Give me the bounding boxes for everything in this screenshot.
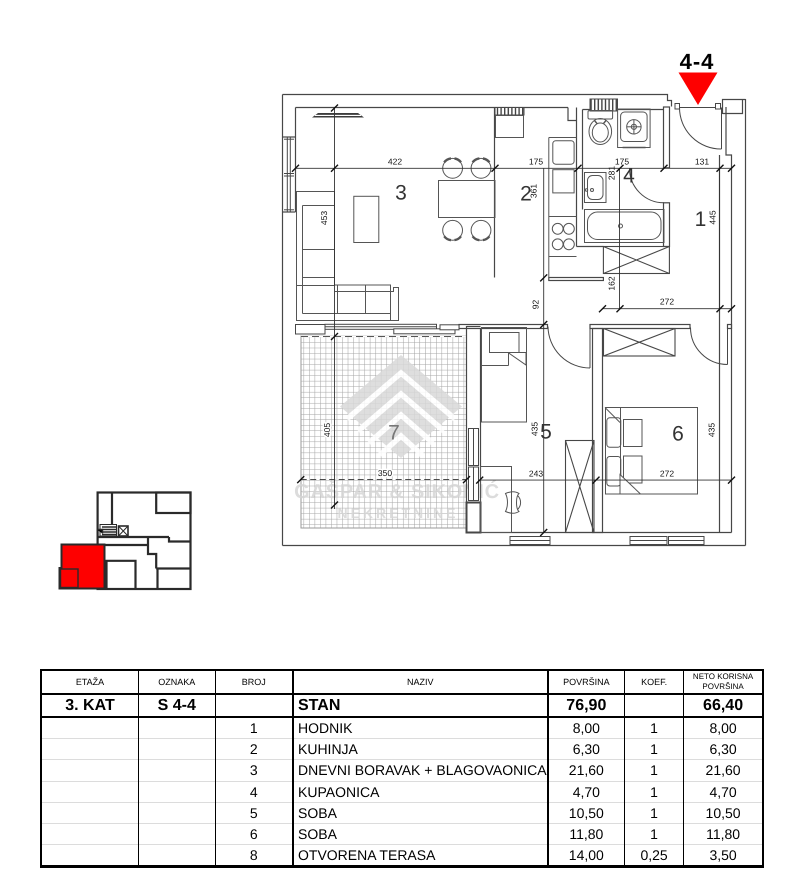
svg-text:453: 453 bbox=[319, 211, 329, 225]
svg-text:281: 281 bbox=[607, 166, 617, 180]
svg-text:175: 175 bbox=[529, 157, 543, 167]
svg-text:1: 1 bbox=[695, 208, 707, 231]
svg-text:NEKRETNINE: NEKRETNINE bbox=[337, 505, 458, 521]
svg-text:92: 92 bbox=[531, 300, 541, 310]
svg-text:162: 162 bbox=[607, 276, 617, 290]
svg-text:272: 272 bbox=[660, 297, 674, 307]
svg-text:6: 6 bbox=[672, 423, 684, 446]
svg-text:272: 272 bbox=[660, 469, 674, 479]
svg-text:435: 435 bbox=[530, 422, 540, 436]
svg-text:445: 445 bbox=[708, 210, 718, 224]
svg-text:4: 4 bbox=[623, 165, 635, 188]
svg-text:2: 2 bbox=[520, 183, 532, 206]
svg-text:243: 243 bbox=[529, 469, 543, 479]
svg-text:7: 7 bbox=[388, 422, 400, 445]
svg-text:435: 435 bbox=[707, 423, 717, 437]
svg-text:405: 405 bbox=[322, 423, 332, 437]
svg-text:350: 350 bbox=[378, 468, 392, 478]
svg-text:4-4: 4-4 bbox=[680, 49, 715, 74]
svg-text:3: 3 bbox=[395, 182, 407, 205]
svg-text:131: 131 bbox=[695, 157, 709, 167]
svg-text:5: 5 bbox=[540, 421, 552, 444]
svg-text:422: 422 bbox=[388, 157, 402, 167]
